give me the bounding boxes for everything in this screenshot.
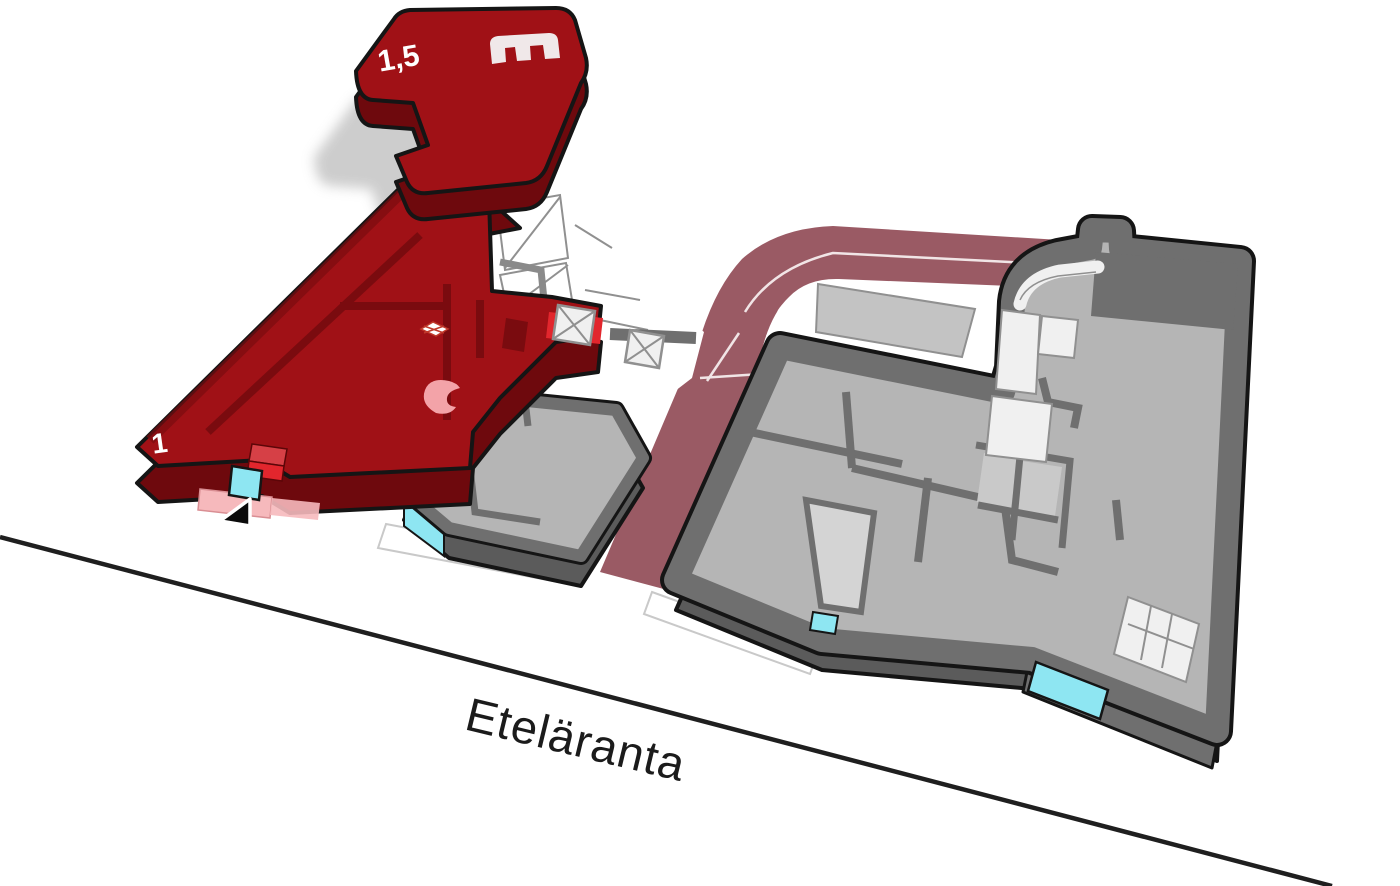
partition-wall: [1116, 500, 1120, 540]
room-outline: [986, 396, 1052, 462]
site-map-stage: 1 1,5 Eteläranta: [0, 0, 1400, 886]
entrance-glass: [810, 612, 838, 634]
site-map: 1 1,5 Eteläranta: [0, 0, 1400, 886]
interior-wall-block: [502, 318, 528, 352]
entrance-glass: [229, 466, 262, 500]
room-floor: [977, 453, 1018, 508]
room-outline: [1038, 316, 1078, 358]
room-outline: [996, 310, 1040, 394]
